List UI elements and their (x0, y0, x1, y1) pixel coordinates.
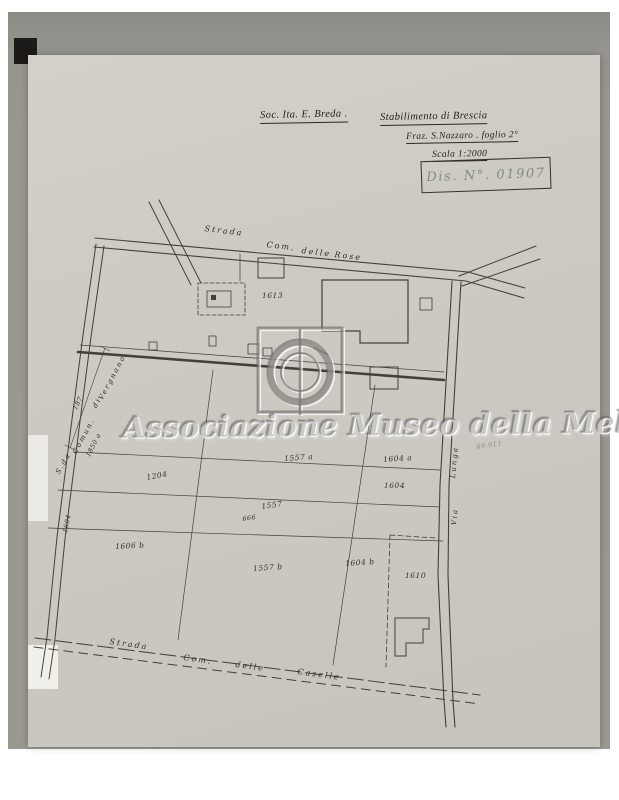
museum-watermark-logo-icon (256, 326, 346, 416)
parcel-label-1557b: 1557 b (253, 563, 283, 573)
road-vergnano-lines (41, 244, 104, 679)
road-via-lunga-lines (438, 281, 461, 727)
title-company: Soc. Ita. E. Breda . (260, 108, 348, 123)
parcel-label-666: 666 (242, 514, 257, 522)
road-fork-topright-lines (459, 246, 540, 286)
parcel-label-1610: 1610 (405, 572, 426, 580)
photo-area: Soc. Ita. E. Breda . Stabilimento di Bre… (8, 12, 610, 749)
title-fraction: Fraz. S.Nazzaro . foglio 2° (406, 130, 518, 144)
parcel-label-1604a: 1604 a (383, 454, 412, 464)
parcel-label-1606b: 1606 b (115, 541, 145, 550)
title-plant: Stabilimento di Brescia (380, 110, 488, 125)
museum-watermark-text: Associazione Museo della Melara (122, 408, 619, 444)
parcel-1610-dashed-lines (386, 535, 435, 667)
scanned-page: Soc. Ita. E. Breda . Stabilimento di Bre… (0, 0, 619, 800)
parcel-label-1613: 1613 (262, 292, 283, 300)
road-label-via: Via (451, 508, 459, 526)
parcel-label-1604b: 1604 b (345, 558, 375, 568)
map-paper: Soc. Ita. E. Breda . Stabilimento di Bre… (28, 55, 600, 747)
road-crossing-topleft-lines (149, 200, 201, 285)
parcel-label-1557a: 1557 a (284, 453, 313, 463)
drawing-number-box: Dis. N°. 01907 (420, 157, 551, 194)
parcel-label-1604: 1604 (384, 482, 405, 490)
drawing-number: Dis. N°. 01907 (426, 166, 546, 183)
